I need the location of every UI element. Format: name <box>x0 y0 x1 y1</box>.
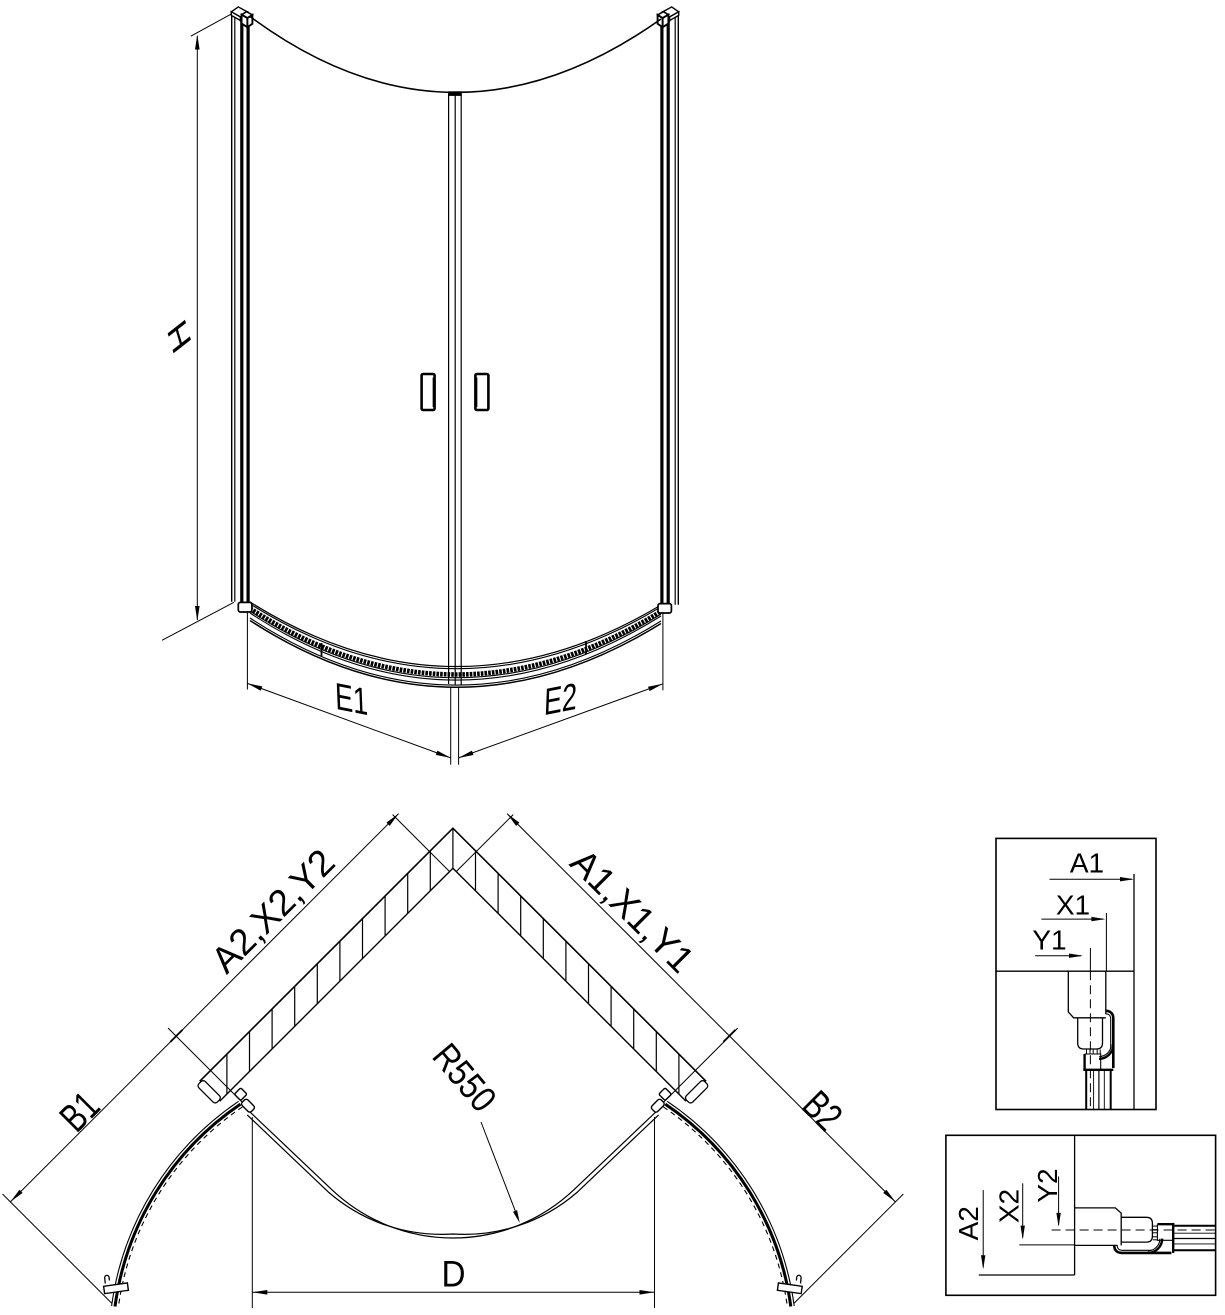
svg-text:D: D <box>441 1254 465 1295</box>
svg-text:X1: X1 <box>1056 890 1090 921</box>
svg-text:A1: A1 <box>1070 848 1104 879</box>
svg-text:Y1: Y1 <box>1032 925 1066 956</box>
svg-text:Y2: Y2 <box>1032 1168 1063 1202</box>
svg-text:E1: E1 <box>334 676 369 725</box>
svg-text:X2: X2 <box>994 1189 1025 1223</box>
svg-text:A2: A2 <box>953 1206 984 1240</box>
svg-text:E2: E2 <box>543 676 578 725</box>
